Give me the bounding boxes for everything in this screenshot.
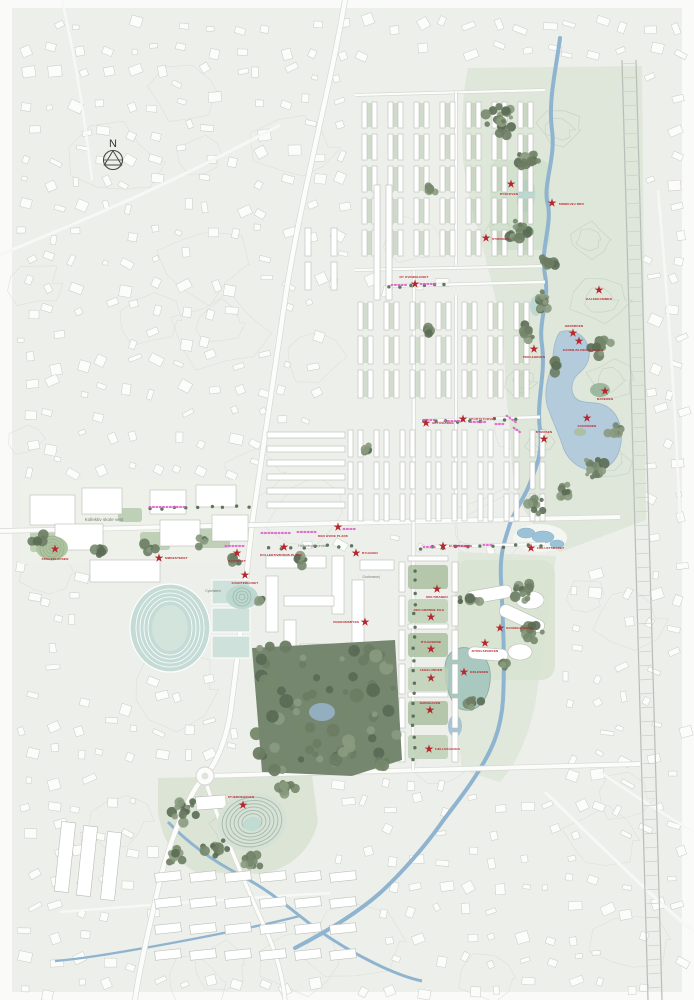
suburb-building xyxy=(26,777,32,783)
suburb-building xyxy=(469,847,477,854)
pink-dot xyxy=(288,532,291,534)
slab-courtyard xyxy=(363,371,368,397)
street-tree xyxy=(412,612,415,615)
suburb-building xyxy=(206,27,214,32)
suburb-building xyxy=(44,444,57,456)
forest-tree xyxy=(339,656,344,661)
housing-slab xyxy=(358,302,363,330)
street-tree xyxy=(412,691,415,694)
housing-slab xyxy=(420,336,425,364)
housing-slab xyxy=(462,462,467,489)
tree xyxy=(426,186,433,193)
pink-dot xyxy=(476,421,479,423)
housing-slab xyxy=(305,228,311,256)
pink-dot xyxy=(423,283,426,285)
court-slab xyxy=(399,630,405,660)
tree xyxy=(524,326,533,335)
pink-dot xyxy=(473,421,476,423)
star-marker-label: MULTIBANEN xyxy=(426,595,448,599)
housing-slab xyxy=(502,198,507,224)
pink-dot xyxy=(300,531,303,533)
west-lamella xyxy=(267,460,345,466)
court-slab xyxy=(452,664,458,694)
site-plan-map: Kollektiv skole vestHelhedsplancentretGu… xyxy=(0,0,694,1000)
housing-slab xyxy=(436,462,441,489)
suburb-building xyxy=(676,562,688,569)
suburb-building xyxy=(565,873,573,881)
slab-courtyard xyxy=(389,337,394,363)
suburb-building xyxy=(390,26,399,35)
slab-courtyard xyxy=(471,231,476,255)
forest-tree xyxy=(348,727,355,734)
suburb-building xyxy=(385,937,393,944)
housing-slab xyxy=(530,462,535,489)
area-label: Cykelstien xyxy=(205,589,221,593)
tree xyxy=(584,458,589,463)
housing-slab xyxy=(502,166,507,192)
court-slab xyxy=(399,664,405,694)
slab-courtyard xyxy=(467,303,472,329)
forest-tree xyxy=(253,747,266,760)
street-tree xyxy=(196,506,199,509)
forest-tree xyxy=(268,764,280,776)
housing-slab xyxy=(348,462,353,489)
street-tree xyxy=(503,418,506,421)
pink-dot xyxy=(149,506,152,508)
star-marker-label: KUNSTGADEN xyxy=(449,544,473,548)
slab-courtyard xyxy=(393,167,398,191)
pink-dot xyxy=(394,284,397,286)
housing-slab xyxy=(384,370,389,398)
pink-dot xyxy=(274,532,277,534)
forest-tree xyxy=(368,734,376,742)
suburb-building xyxy=(176,144,186,151)
housing-slab xyxy=(410,336,415,364)
tree xyxy=(530,637,538,645)
suburb-building xyxy=(653,571,659,579)
housing-slab xyxy=(440,166,445,192)
suburb-building xyxy=(96,126,110,136)
street-tree xyxy=(413,746,416,749)
housing-slab xyxy=(446,302,451,330)
suburb-building xyxy=(379,909,387,919)
tree xyxy=(501,119,505,123)
housing-slab xyxy=(436,336,441,364)
tree xyxy=(543,300,548,305)
forest-tree xyxy=(266,710,279,723)
housing-slab xyxy=(446,370,451,398)
housing-slab xyxy=(472,302,477,330)
sports-court xyxy=(212,608,250,632)
housing-slab xyxy=(368,302,373,330)
suburb-building xyxy=(588,587,602,599)
suburb-building xyxy=(71,228,80,234)
pink-dot xyxy=(284,532,287,534)
suburb-building xyxy=(436,956,447,968)
housing-slab xyxy=(492,198,497,224)
pink-dot xyxy=(238,545,241,547)
suburb-building xyxy=(21,986,29,992)
forest-tree xyxy=(343,689,349,695)
tree xyxy=(598,467,606,475)
suburb-building xyxy=(208,92,221,103)
suburb-building xyxy=(128,233,138,242)
tree xyxy=(179,810,187,818)
suburb-building xyxy=(70,592,79,598)
pink-dot xyxy=(343,528,346,530)
forest-tree xyxy=(279,640,291,652)
slab-courtyard xyxy=(393,199,398,223)
housing-slab xyxy=(540,430,545,457)
court-slab xyxy=(452,630,458,660)
forest-tree xyxy=(265,642,275,652)
street-tree xyxy=(221,506,224,509)
street-tree xyxy=(211,505,214,508)
tree xyxy=(458,599,463,604)
suburb-building xyxy=(314,21,323,28)
tree xyxy=(565,489,571,495)
tree xyxy=(468,704,475,711)
tree xyxy=(552,361,561,370)
suburb-building xyxy=(619,909,632,920)
street-tree xyxy=(247,506,250,509)
housing-slab xyxy=(362,166,367,192)
housing-slab xyxy=(498,302,503,330)
suburb-building xyxy=(81,392,88,398)
housing-slab xyxy=(514,462,519,489)
street-tree xyxy=(289,546,292,549)
pink-dot xyxy=(498,423,501,425)
forest-tree xyxy=(326,686,334,694)
pink-dot xyxy=(278,532,281,534)
suburb-building xyxy=(151,225,159,232)
housing-slab xyxy=(410,370,415,398)
school-building xyxy=(212,515,248,541)
tree xyxy=(590,474,595,479)
suburb-building xyxy=(237,49,247,55)
slab-courtyard xyxy=(441,371,446,397)
suburb-building xyxy=(130,798,136,804)
suburb-building xyxy=(68,614,74,624)
housing-slab xyxy=(478,494,483,521)
housing-slab xyxy=(394,302,399,330)
tree xyxy=(279,781,288,790)
forest-tree xyxy=(338,747,348,757)
suburb-building xyxy=(495,884,505,895)
slab-courtyard xyxy=(367,199,372,223)
slab-courtyard xyxy=(497,135,502,159)
street-tree xyxy=(514,543,517,546)
housing-slab xyxy=(440,102,445,128)
suburb-building xyxy=(199,174,210,181)
housing-slab xyxy=(450,230,455,256)
west-lamella xyxy=(267,432,345,438)
court-slab xyxy=(399,596,405,626)
slab-courtyard xyxy=(367,135,372,159)
housing-slab xyxy=(514,302,519,330)
forest-tree xyxy=(350,688,364,702)
suburb-building xyxy=(592,950,601,955)
slab-courtyard xyxy=(415,371,420,397)
housing-slab xyxy=(476,198,481,224)
housing-slab xyxy=(450,198,455,224)
suburb-building xyxy=(674,257,684,266)
pink-dot xyxy=(162,506,165,508)
pink-dot xyxy=(349,528,352,530)
housing-slab xyxy=(488,494,493,521)
forest-tree xyxy=(344,708,354,718)
forest-tree xyxy=(305,722,315,732)
tree xyxy=(540,630,545,635)
housing-slab xyxy=(362,102,367,128)
slab-courtyard xyxy=(519,371,524,397)
suburb-building xyxy=(41,990,53,1000)
housing-slab xyxy=(436,302,441,330)
housing-slab xyxy=(398,102,403,128)
housing-slab xyxy=(362,198,367,224)
street-tree xyxy=(235,504,238,507)
slab-courtyard xyxy=(367,167,372,191)
forest-tree xyxy=(372,711,378,717)
suburb-building xyxy=(50,235,57,245)
slab-courtyard xyxy=(367,231,372,255)
tree xyxy=(526,157,536,167)
tree xyxy=(522,158,527,163)
housing-slab xyxy=(452,462,457,489)
suburb-building xyxy=(95,748,103,755)
street-tree xyxy=(413,578,416,581)
pink-dot xyxy=(176,506,179,508)
housing-slab xyxy=(414,198,419,224)
centre-building xyxy=(352,580,364,646)
street-tree xyxy=(387,285,390,288)
housing-slab xyxy=(424,230,429,256)
tree xyxy=(514,584,520,590)
tree xyxy=(465,593,475,603)
housing-slab xyxy=(452,430,457,457)
suburb-building xyxy=(203,674,214,684)
housing-slab xyxy=(488,336,493,364)
housing-slab xyxy=(384,494,389,521)
suburb-building xyxy=(81,931,91,939)
suburb-building xyxy=(46,105,52,110)
tree xyxy=(475,597,484,606)
suburb-building xyxy=(27,440,39,450)
forest-tree xyxy=(348,645,360,657)
pink-route-marker xyxy=(149,506,186,508)
pink-dot xyxy=(501,423,504,425)
suburb-building xyxy=(566,700,573,708)
park-building xyxy=(196,795,227,810)
pink-dot xyxy=(307,531,310,533)
suburb-building xyxy=(331,780,345,790)
housing-slab xyxy=(466,198,471,224)
suburb-building xyxy=(132,49,138,55)
pink-dot xyxy=(433,546,436,548)
tree xyxy=(224,846,230,852)
pink-dot xyxy=(242,545,245,547)
housing-slab xyxy=(514,370,519,398)
housing-slab xyxy=(440,134,445,160)
suburb-building xyxy=(156,749,170,760)
slab-courtyard xyxy=(419,135,424,159)
star-marker-label: MØDESTEDET xyxy=(165,556,188,560)
street-tree xyxy=(411,646,414,649)
housing-slab xyxy=(466,134,471,160)
suburb-building xyxy=(24,829,37,839)
tree xyxy=(221,838,226,843)
housing-slab xyxy=(498,336,503,364)
suburb-building xyxy=(523,47,533,54)
tree xyxy=(213,846,219,852)
tree xyxy=(171,849,180,858)
court-slab xyxy=(452,698,458,728)
housing-slab xyxy=(388,134,393,160)
slab-courtyard xyxy=(389,371,394,397)
pink-dot xyxy=(426,546,429,548)
suburb-building xyxy=(209,386,221,394)
forest-tree xyxy=(259,675,271,687)
star-marker-label: BYHAVERNE xyxy=(421,640,441,644)
forest-tree xyxy=(371,662,378,669)
slab-courtyard xyxy=(419,103,424,127)
tree xyxy=(613,422,620,429)
suburb-building xyxy=(412,792,422,802)
housing-slab xyxy=(410,302,415,330)
star-marker-label: SANSEHAVERNE xyxy=(506,626,533,630)
housing-slab xyxy=(492,166,497,192)
slab-courtyard xyxy=(523,103,528,127)
suburb-building xyxy=(260,25,269,34)
suburb-building xyxy=(261,275,273,280)
pink-route-marker xyxy=(391,284,408,286)
pink-dot xyxy=(426,283,429,285)
tree xyxy=(200,846,210,856)
centre-building xyxy=(266,576,278,632)
street-tree xyxy=(411,714,414,717)
housing-slab xyxy=(372,102,377,128)
tree xyxy=(510,591,521,602)
slab-courtyard xyxy=(415,303,420,329)
forest-tree xyxy=(366,683,380,697)
slab-courtyard xyxy=(445,231,450,255)
star-marker-label: KALKEDAMMEN xyxy=(586,297,613,301)
star-marker-label: BYHAVEN xyxy=(362,551,378,555)
pink-dot xyxy=(454,420,457,422)
star-marker-label: HØJBROEN xyxy=(565,324,584,328)
slab-courtyard xyxy=(497,231,502,255)
suburb-building xyxy=(302,94,309,103)
housing-slab xyxy=(488,430,493,457)
suburb-building xyxy=(471,987,481,997)
tree xyxy=(518,222,523,227)
slab-courtyard xyxy=(493,303,498,329)
street-tree xyxy=(350,544,353,547)
suburb-building xyxy=(569,937,577,946)
suburb-building xyxy=(335,855,342,864)
slab-courtyard xyxy=(467,371,472,397)
housing-slab xyxy=(426,462,431,489)
slab-courtyard xyxy=(493,371,498,397)
suburb-building xyxy=(104,958,116,967)
suburb-building xyxy=(628,986,636,994)
housing-slab xyxy=(400,462,405,489)
suburb-building xyxy=(436,860,449,867)
tree xyxy=(619,427,624,432)
suburb-building xyxy=(388,856,397,867)
tree xyxy=(509,115,513,119)
slab-courtyard xyxy=(363,337,368,363)
tree xyxy=(256,863,263,870)
suburb-building xyxy=(185,725,195,735)
pink-dot xyxy=(420,283,423,285)
suburb-building xyxy=(644,463,656,470)
housing-slab xyxy=(358,336,363,364)
housing-slab xyxy=(462,370,467,398)
tree xyxy=(97,547,106,556)
court-slab xyxy=(399,698,405,728)
suburb-building xyxy=(54,330,65,338)
suburb-building xyxy=(105,717,117,723)
housing-slab xyxy=(478,462,483,489)
suburb-building xyxy=(51,743,59,752)
pink-dot xyxy=(310,531,313,533)
pink-dot xyxy=(225,545,228,547)
suburb-building xyxy=(182,247,190,257)
housing-slab xyxy=(466,166,471,192)
housing-slab xyxy=(398,166,403,192)
housing-slab xyxy=(368,370,373,398)
housing-slab xyxy=(436,370,441,398)
street-tree xyxy=(419,547,422,550)
pink-dot xyxy=(483,421,486,423)
forest-tree xyxy=(382,705,394,717)
housing-slab xyxy=(492,230,497,256)
pink-dot xyxy=(457,420,460,422)
tree xyxy=(247,851,255,859)
slab-courtyard xyxy=(445,135,450,159)
suburb-building xyxy=(384,807,396,813)
housing-slab xyxy=(394,370,399,398)
housing-slab xyxy=(492,134,497,160)
lake-islet xyxy=(574,428,586,436)
suburb-building xyxy=(493,986,500,995)
housing-slab xyxy=(530,430,535,457)
slab-courtyard xyxy=(471,199,476,223)
forest-tree xyxy=(348,672,358,682)
suburb-building xyxy=(521,802,534,810)
suburb-building xyxy=(17,227,25,233)
tree xyxy=(525,596,531,602)
forest-tree xyxy=(256,645,263,652)
star-marker-label: AKTIVGADEN xyxy=(432,421,454,425)
star-marker-label: MINDEVEJ BRO xyxy=(559,202,584,206)
housing-slab xyxy=(518,102,523,128)
suburb-building xyxy=(495,805,506,813)
slab-courtyard xyxy=(445,167,450,191)
forest-tree xyxy=(294,698,302,706)
star-marker-label: BYSKOVEN xyxy=(500,192,519,196)
pink-route-marker xyxy=(495,423,505,425)
suburb-building xyxy=(150,43,158,48)
suburb-building xyxy=(95,100,104,107)
pink-dot xyxy=(423,419,426,421)
slab-courtyard xyxy=(471,135,476,159)
slab-courtyard xyxy=(389,303,394,329)
forest-tree xyxy=(293,708,300,715)
slab-courtyard xyxy=(445,103,450,127)
slab-courtyard xyxy=(393,231,398,255)
